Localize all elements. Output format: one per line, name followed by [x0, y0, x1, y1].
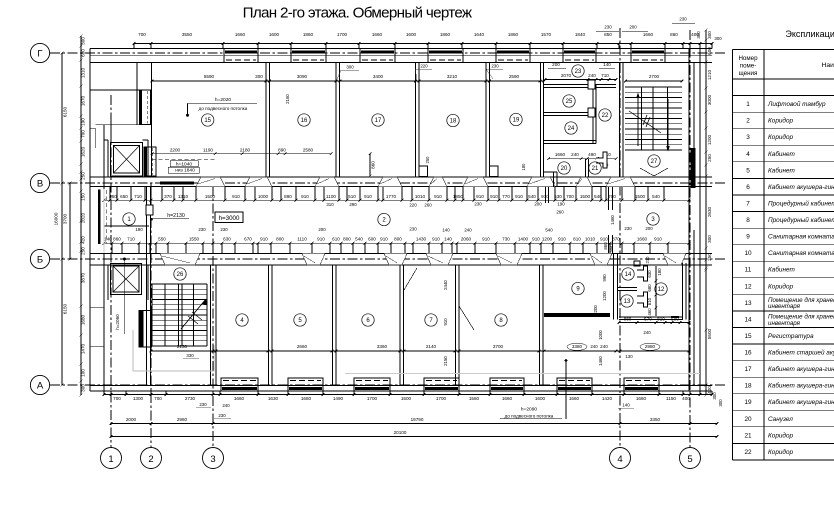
svg-text:18: 18: [744, 383, 752, 390]
svg-text:140: 140: [622, 403, 630, 408]
svg-text:16000: 16000: [54, 212, 59, 225]
svg-text:2960: 2960: [177, 417, 188, 422]
svg-text:250: 250: [707, 154, 712, 162]
svg-text:1850: 1850: [453, 194, 464, 199]
svg-text:710: 710: [127, 237, 135, 242]
svg-text:910: 910: [490, 194, 498, 199]
svg-text:1500: 1500: [205, 194, 216, 199]
svg-text:610: 610: [647, 297, 652, 305]
svg-text:h=2020: h=2020: [215, 97, 231, 103]
svg-text:1600: 1600: [406, 32, 417, 37]
svg-text:2730: 2730: [185, 396, 196, 401]
svg-text:6150: 6150: [63, 106, 68, 117]
svg-text:490: 490: [588, 152, 596, 157]
svg-text:700: 700: [566, 194, 574, 199]
svg-text:300: 300: [255, 74, 263, 79]
svg-text:1700: 1700: [337, 32, 348, 37]
svg-text:870: 870: [612, 237, 620, 242]
svg-text:630: 630: [647, 270, 652, 278]
svg-text:2580: 2580: [303, 147, 314, 152]
svg-text:910: 910: [364, 194, 372, 199]
svg-text:1500: 1500: [580, 194, 591, 199]
svg-text:16: 16: [301, 118, 308, 124]
svg-text:300: 300: [346, 65, 354, 70]
svg-text:Коридор: Коридор: [768, 117, 794, 125]
svg-text:10: 10: [744, 250, 752, 257]
svg-text:1670: 1670: [81, 95, 86, 106]
svg-text:140: 140: [442, 228, 450, 233]
svg-text:19: 19: [744, 399, 752, 406]
svg-text:1700: 1700: [436, 396, 447, 401]
svg-text:230: 230: [198, 227, 206, 232]
svg-text:680: 680: [647, 284, 652, 292]
svg-text:220: 220: [409, 203, 417, 208]
svg-text:2130: 2130: [177, 344, 188, 349]
svg-text:100: 100: [81, 369, 86, 377]
svg-text:650: 650: [120, 194, 128, 199]
svg-text:h=2130: h=2130: [167, 213, 185, 219]
svg-text:240: 240: [464, 228, 472, 233]
svg-text:11: 11: [745, 267, 752, 274]
svg-text:200: 200: [645, 226, 653, 231]
svg-text:Санузел: Санузел: [768, 416, 793, 423]
svg-text:700: 700: [608, 194, 616, 199]
svg-text:180: 180: [657, 268, 662, 276]
svg-text:770: 770: [502, 194, 510, 199]
svg-text:2140: 2140: [426, 344, 437, 349]
svg-text:8: 8: [746, 217, 750, 224]
svg-text:240: 240: [222, 403, 230, 408]
svg-text:260: 260: [424, 203, 432, 208]
svg-text:1660: 1660: [235, 32, 246, 37]
svg-text:190: 190: [135, 227, 143, 232]
svg-text:330: 330: [186, 353, 194, 358]
svg-text:300: 300: [707, 235, 712, 243]
svg-text:130: 130: [625, 354, 633, 359]
svg-text:1860: 1860: [440, 32, 451, 37]
svg-text:21: 21: [744, 432, 752, 439]
svg-text:2000: 2000: [126, 417, 137, 422]
svg-text:230: 230: [624, 226, 632, 231]
svg-text:Санитарная комната: Санитарная комната: [768, 234, 834, 241]
svg-text:17: 17: [744, 366, 752, 373]
svg-text:3360: 3360: [377, 344, 388, 349]
svg-text:860: 860: [371, 161, 376, 169]
svg-text:240: 240: [571, 152, 579, 157]
svg-text:Кабинет старшей акушерки: Кабинет старшей акушерки: [768, 349, 834, 357]
svg-text:2440: 2440: [443, 280, 448, 290]
svg-text:290: 290: [349, 202, 357, 207]
svg-text:Кабинет: Кабинет: [768, 166, 795, 174]
svg-text:9: 9: [746, 234, 750, 241]
svg-text:140: 140: [104, 237, 112, 242]
svg-text:140: 140: [444, 237, 452, 242]
svg-text:3090: 3090: [297, 74, 308, 79]
svg-text:800: 800: [276, 237, 284, 242]
svg-text:1550: 1550: [189, 237, 200, 242]
svg-text:инвентаря: инвентаря: [768, 303, 801, 310]
svg-text:880: 880: [624, 317, 632, 322]
svg-text:1630: 1630: [268, 396, 279, 401]
svg-text:1200: 1200: [707, 134, 712, 145]
svg-text:1660: 1660: [555, 152, 566, 157]
svg-text:1190: 1190: [203, 147, 213, 152]
svg-text:2020: 2020: [81, 212, 86, 223]
svg-text:4: 4: [617, 454, 622, 465]
svg-text:1490: 1490: [333, 396, 344, 401]
svg-text:13: 13: [624, 299, 631, 305]
svg-text:540: 540: [652, 194, 660, 199]
svg-text:700: 700: [81, 130, 86, 138]
svg-text:14: 14: [744, 316, 752, 323]
svg-text:2660: 2660: [297, 344, 308, 349]
svg-text:860: 860: [603, 242, 608, 250]
svg-text:200: 200: [534, 202, 542, 207]
svg-text:Кабинет: Кабинет: [768, 266, 795, 274]
svg-text:1570: 1570: [541, 32, 552, 37]
svg-text:910: 910: [232, 194, 240, 199]
svg-text:1660: 1660: [637, 237, 648, 242]
svg-text:14: 14: [625, 272, 632, 278]
svg-text:1010: 1010: [585, 237, 596, 242]
svg-text:260: 260: [556, 210, 564, 215]
svg-text:180: 180: [521, 163, 526, 171]
svg-text:150: 150: [81, 193, 86, 201]
svg-text:990: 990: [602, 274, 607, 282]
svg-text:910: 910: [443, 318, 448, 326]
svg-text:2150: 2150: [443, 356, 448, 366]
svg-text:3700: 3700: [63, 213, 68, 224]
svg-text:1210: 1210: [707, 69, 712, 80]
svg-text:3400: 3400: [373, 74, 384, 79]
svg-text:460: 460: [647, 308, 652, 316]
svg-text:250: 250: [425, 156, 430, 164]
svg-text:240: 240: [600, 344, 608, 349]
svg-text:810: 810: [657, 317, 665, 322]
svg-text:730: 730: [502, 237, 510, 242]
svg-text:6150: 6150: [63, 303, 68, 314]
svg-text:15: 15: [744, 333, 752, 340]
svg-text:24: 24: [568, 126, 575, 132]
svg-text:800: 800: [343, 237, 351, 242]
svg-text:h=2090: h=2090: [521, 407, 537, 413]
svg-text:инвентаря: инвентаря: [768, 320, 801, 327]
svg-text:Экспликация помещений: Экспликация помещений: [785, 29, 834, 39]
svg-text:1200: 1200: [542, 237, 553, 242]
svg-text:19: 19: [513, 118, 520, 124]
svg-text:1500: 1500: [401, 396, 412, 401]
svg-text:18: 18: [450, 119, 457, 125]
svg-text:1500: 1500: [635, 194, 646, 199]
svg-text:3700: 3700: [493, 344, 504, 349]
svg-text:910: 910: [600, 237, 608, 242]
svg-text:до подвесного потолка: до подвесного потолка: [505, 414, 554, 419]
svg-text:1770: 1770: [386, 194, 397, 199]
svg-text:1840: 1840: [575, 32, 586, 37]
svg-text:Коридор: Коридор: [768, 431, 794, 439]
svg-text:370: 370: [164, 194, 172, 199]
svg-text:300: 300: [714, 36, 722, 41]
svg-text:890: 890: [284, 194, 292, 199]
svg-text:5500: 5500: [707, 328, 712, 339]
svg-text:1860: 1860: [303, 32, 314, 37]
svg-text:1470: 1470: [81, 343, 86, 354]
svg-text:1660: 1660: [569, 396, 580, 401]
svg-text:1400: 1400: [518, 237, 529, 242]
svg-text:5: 5: [687, 454, 692, 465]
svg-text:22: 22: [602, 113, 609, 119]
svg-text:190: 190: [557, 202, 565, 207]
svg-text:2060: 2060: [461, 237, 472, 242]
svg-text:250: 250: [81, 247, 86, 255]
svg-text:22: 22: [744, 449, 752, 456]
svg-text:300: 300: [707, 31, 712, 39]
svg-text:1300: 1300: [133, 396, 144, 401]
svg-text:400: 400: [682, 396, 690, 401]
svg-text:3550: 3550: [182, 32, 193, 37]
svg-text:1660: 1660: [636, 396, 647, 401]
svg-text:540: 540: [545, 228, 553, 233]
svg-text:Коридор: Коридор: [768, 448, 794, 456]
svg-text:2200: 2200: [593, 305, 598, 315]
svg-text:1660: 1660: [372, 32, 383, 37]
svg-text:2200: 2200: [170, 147, 181, 152]
svg-text:Г: Г: [37, 48, 42, 59]
svg-text:230: 230: [220, 227, 228, 232]
svg-text:Кабинет акушера-гинеколога: Кабинет акушера-гинеколога: [768, 365, 834, 373]
svg-text:1660: 1660: [502, 396, 513, 401]
svg-text:710: 710: [601, 73, 609, 78]
svg-text:1310: 1310: [178, 194, 189, 199]
svg-text:Кабинет акушера-гинеколога: Кабинет акушера-гинеколога: [768, 183, 834, 191]
svg-text:890: 890: [278, 147, 286, 152]
svg-text:910: 910: [434, 194, 442, 199]
svg-text:300: 300: [696, 31, 701, 39]
svg-text:1660: 1660: [301, 396, 312, 401]
svg-text:щения: щения: [739, 70, 758, 77]
svg-text:20: 20: [561, 166, 568, 172]
svg-text:1700: 1700: [367, 396, 378, 401]
svg-text:910: 910: [317, 237, 325, 242]
svg-text:до подвесного потолка: до подвесного потолка: [199, 106, 248, 111]
svg-text:1660: 1660: [234, 396, 245, 401]
svg-text:1310: 1310: [81, 67, 86, 78]
svg-text:1460: 1460: [610, 215, 615, 225]
svg-text:910: 910: [380, 237, 388, 242]
svg-text:1420: 1420: [602, 396, 613, 401]
svg-text:300: 300: [718, 399, 723, 407]
svg-text:230: 230: [474, 202, 482, 207]
svg-text:140: 140: [603, 62, 611, 67]
svg-text:Кабинет: Кабинет: [768, 150, 795, 158]
svg-text:450: 450: [109, 194, 117, 199]
svg-text:700: 700: [154, 396, 162, 401]
svg-text:1100: 1100: [326, 194, 336, 199]
svg-text:230: 230: [218, 413, 226, 418]
svg-text:20: 20: [744, 416, 752, 423]
svg-text:Процедурный кабинет: Процедурный кабинет: [768, 199, 834, 207]
svg-text:Процедурный кабинет: Процедурный кабинет: [768, 216, 834, 224]
svg-text:540: 540: [594, 194, 602, 199]
svg-text:1860: 1860: [508, 32, 519, 37]
svg-text:230: 230: [409, 227, 417, 232]
svg-text:910: 910: [558, 237, 566, 242]
svg-text:200: 200: [629, 25, 637, 30]
svg-text:310: 310: [326, 202, 334, 207]
svg-text:810: 810: [573, 237, 581, 242]
svg-text:3870: 3870: [81, 272, 86, 283]
svg-text:910: 910: [432, 237, 440, 242]
svg-text:240: 240: [590, 344, 598, 349]
svg-text:3: 3: [210, 454, 215, 465]
svg-text:4: 4: [746, 151, 750, 158]
svg-text:300: 300: [81, 384, 86, 392]
svg-text:910: 910: [301, 194, 309, 199]
svg-text:2180: 2180: [240, 147, 251, 152]
svg-text:3350: 3350: [650, 417, 661, 422]
svg-text:910: 910: [654, 237, 662, 242]
svg-text:15: 15: [204, 118, 211, 124]
svg-text:Б: Б: [37, 254, 43, 265]
svg-text:7: 7: [746, 200, 750, 207]
svg-text:Лифтовой тамбур: Лифтовой тамбур: [767, 100, 826, 108]
svg-text:2980: 2980: [645, 344, 656, 349]
svg-text:910: 910: [476, 194, 484, 199]
svg-text:910: 910: [515, 194, 523, 199]
svg-text:860: 860: [113, 237, 121, 242]
svg-text:6: 6: [746, 184, 750, 191]
svg-text:2630: 2630: [707, 206, 712, 217]
svg-text:Коридор: Коридор: [768, 133, 794, 141]
svg-text:610: 610: [332, 237, 340, 242]
svg-text:1010: 1010: [415, 194, 426, 199]
svg-text:910: 910: [541, 194, 549, 199]
svg-text:2160: 2160: [285, 94, 290, 104]
svg-text:Коридор: Коридор: [768, 282, 794, 290]
svg-text:540: 540: [355, 237, 363, 242]
svg-text:25: 25: [566, 99, 573, 105]
svg-text:Кабинет акушера-гинеколога: Кабинет акушера-гинеколога: [768, 382, 834, 390]
svg-text:250: 250: [707, 253, 712, 261]
svg-text:3: 3: [746, 134, 750, 141]
svg-text:1150: 1150: [666, 396, 676, 401]
svg-text:1660: 1660: [643, 32, 654, 37]
svg-text:910: 910: [260, 237, 268, 242]
svg-text:210: 210: [645, 256, 650, 264]
svg-text:16: 16: [744, 350, 752, 357]
svg-text:1680: 1680: [81, 314, 86, 325]
svg-text:420: 420: [81, 236, 86, 244]
svg-text:300: 300: [712, 392, 717, 400]
svg-text:190: 190: [81, 118, 86, 126]
svg-text:Регистратура: Регистратура: [768, 333, 814, 340]
svg-text:600: 600: [81, 49, 86, 57]
svg-text:710: 710: [134, 194, 142, 199]
svg-text:20100: 20100: [394, 430, 407, 435]
svg-text:3210: 3210: [447, 74, 458, 79]
svg-text:2070: 2070: [561, 73, 572, 78]
svg-text:570: 570: [644, 317, 652, 322]
svg-text:Кабинет акушера-гинеколога: Кабинет акушера-гинеколога: [768, 398, 834, 406]
svg-text:В: В: [37, 178, 43, 189]
svg-text:540: 540: [528, 194, 536, 199]
svg-text:12: 12: [658, 287, 665, 293]
svg-text:поме-: поме-: [740, 63, 757, 70]
svg-text:500: 500: [671, 317, 679, 322]
svg-text:230: 230: [199, 402, 207, 407]
svg-text:27: 27: [651, 159, 658, 165]
svg-text:Санитарная комната: Санитарная комната: [768, 250, 834, 257]
svg-text:200: 200: [318, 227, 326, 232]
svg-text:510: 510: [348, 194, 356, 199]
svg-text:300: 300: [81, 37, 86, 45]
svg-text:1110: 1110: [297, 237, 307, 242]
svg-text:1: 1: [108, 454, 113, 465]
svg-text:240: 240: [588, 73, 596, 78]
svg-text:230: 230: [604, 25, 612, 30]
svg-text:1620: 1620: [81, 146, 86, 157]
svg-text:910: 910: [532, 237, 540, 242]
svg-text:2700: 2700: [649, 74, 660, 79]
svg-text:План 2-го этажа. Обмерный черт: План 2-го этажа. Обмерный чертеж: [243, 5, 473, 22]
svg-text:800: 800: [394, 237, 402, 242]
svg-text:3000: 3000: [707, 94, 712, 105]
svg-text:26: 26: [177, 272, 184, 278]
svg-text:21: 21: [592, 166, 599, 172]
svg-text:17: 17: [375, 118, 382, 124]
svg-text:860: 860: [670, 32, 678, 37]
svg-text:670: 670: [244, 237, 252, 242]
svg-text:700: 700: [138, 32, 146, 37]
svg-text:910: 910: [482, 237, 490, 242]
svg-text:низ 1840: низ 1840: [175, 168, 195, 174]
svg-text:230: 230: [491, 64, 499, 69]
svg-text:600: 600: [368, 237, 376, 242]
svg-text:550: 550: [158, 237, 166, 242]
svg-text:5590: 5590: [204, 74, 215, 79]
svg-text:230: 230: [679, 17, 687, 22]
svg-text:3380: 3380: [572, 344, 583, 349]
svg-text:А: А: [37, 380, 44, 391]
svg-text:1430: 1430: [416, 237, 427, 242]
svg-text:1000: 1000: [258, 194, 269, 199]
svg-text:2590: 2590: [509, 74, 520, 79]
svg-text:19790: 19790: [411, 417, 424, 422]
svg-text:Наименование: Наименование: [821, 62, 834, 69]
svg-text:850: 850: [604, 32, 612, 37]
svg-text:240: 240: [643, 330, 651, 335]
svg-text:Номер: Номер: [738, 55, 758, 62]
svg-text:1460: 1460: [598, 356, 603, 366]
svg-text:1000: 1000: [598, 330, 603, 340]
svg-text:200: 200: [552, 62, 560, 67]
svg-text:1600: 1600: [269, 32, 280, 37]
svg-text:220: 220: [420, 64, 428, 69]
svg-text:630: 630: [223, 237, 231, 242]
svg-text:1560: 1560: [469, 396, 480, 401]
svg-text:2: 2: [746, 118, 750, 125]
svg-text:h=3000: h=3000: [219, 215, 240, 222]
svg-text:250: 250: [81, 172, 86, 180]
svg-text:13: 13: [744, 300, 752, 307]
svg-text:2: 2: [148, 454, 153, 465]
svg-text:1600: 1600: [535, 396, 546, 401]
svg-text:1640: 1640: [474, 32, 485, 37]
svg-text:12: 12: [744, 283, 752, 290]
svg-text:1: 1: [746, 101, 750, 108]
svg-text:600: 600: [707, 47, 712, 55]
svg-text:700: 700: [113, 396, 121, 401]
